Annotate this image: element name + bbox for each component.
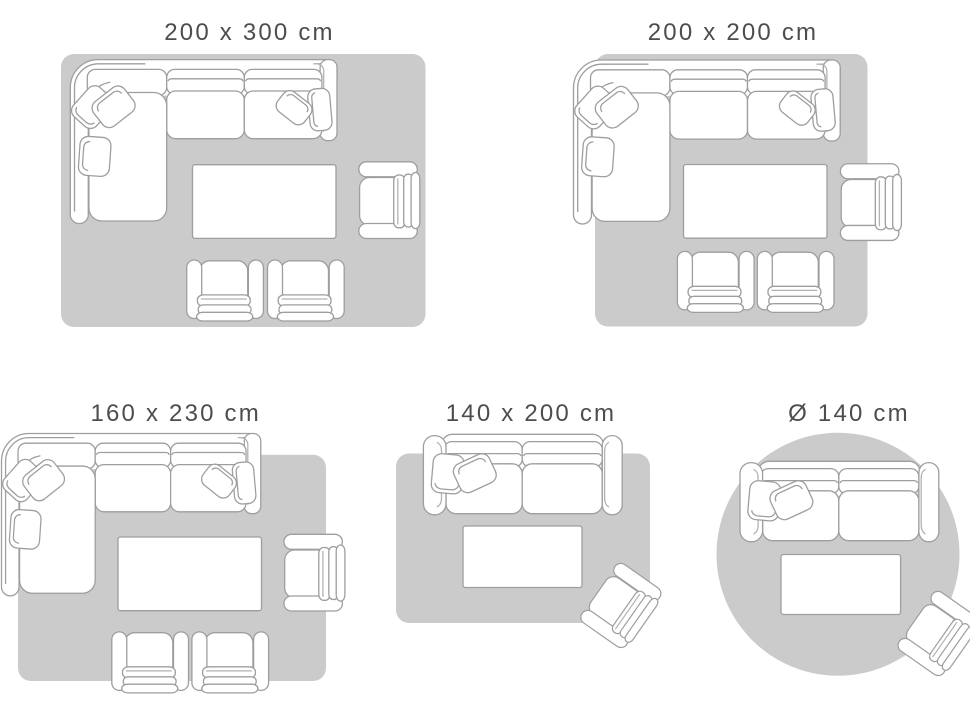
svg-text:Ø 140 cm: Ø 140 cm bbox=[788, 400, 910, 427]
svg-text:160 x 230 cm: 160 x 230 cm bbox=[90, 400, 260, 427]
svg-text:140 x 200 cm: 140 x 200 cm bbox=[446, 400, 616, 427]
svg-text:200 x 300 cm: 200 x 300 cm bbox=[164, 19, 334, 46]
svg-text:200 x 200 cm: 200 x 200 cm bbox=[648, 19, 818, 46]
